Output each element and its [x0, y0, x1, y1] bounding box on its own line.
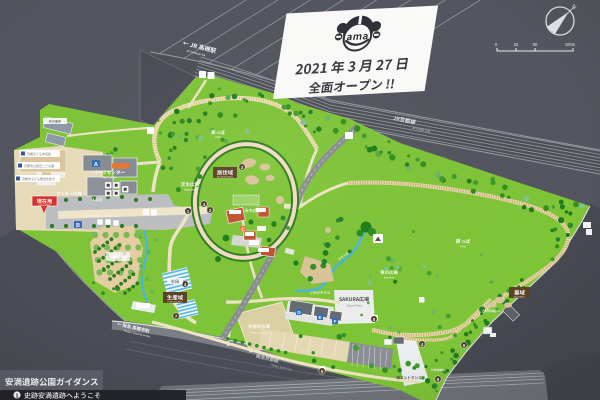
svg-text:高槻子ども未来館: 高槻子ども未来館 — [27, 151, 51, 156]
svg-text:Producing Area: Producing Area — [168, 300, 184, 303]
svg-text:高槻市子ども発達支援セ: 高槻市子ども発達支援セ — [22, 176, 55, 181]
svg-text:TAKANO TOILET: TAKANO TOILET — [83, 214, 123, 218]
svg-text:B: B — [76, 223, 80, 229]
svg-text:Field: Field — [215, 136, 221, 139]
svg-text:100m: 100m — [565, 42, 576, 47]
svg-text:Residential Area: Residential Area — [217, 175, 234, 178]
svg-text:Park Center: Park Center — [102, 176, 116, 180]
svg-text:East Area: East Area — [384, 277, 395, 280]
svg-text:Sakura Plaza: Sakura Plaza — [346, 304, 362, 308]
svg-text:E: E — [318, 315, 321, 320]
svg-text:Burial Area: Burial Area — [514, 295, 525, 298]
svg-text:50: 50 — [533, 42, 538, 47]
svg-text:F: F — [334, 319, 337, 324]
svg-text:You are Here: You are Here — [38, 204, 51, 207]
svg-text:25: 25 — [514, 42, 519, 47]
svg-text:Multipurpose Area: Multipurpose Area — [250, 332, 268, 335]
svg-text:Grass Area: Grass Area — [184, 189, 197, 192]
svg-text:Field: Field — [460, 246, 466, 249]
svg-text:高槻市立認定こども園: 高槻市立認定こども園 — [24, 163, 54, 168]
svg-text:A: A — [94, 162, 98, 168]
svg-text:C: C — [241, 227, 245, 233]
svg-text:1: 1 — [15, 393, 18, 399]
